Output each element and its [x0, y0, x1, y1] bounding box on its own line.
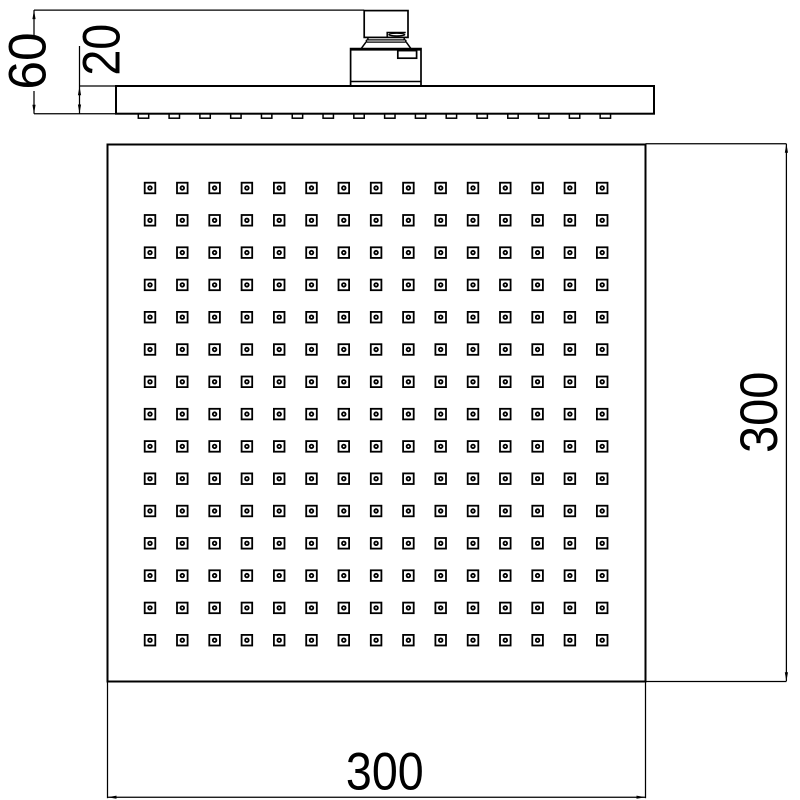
svg-text:300: 300 [729, 372, 788, 453]
svg-text:300: 300 [346, 742, 424, 800]
svg-text:20: 20 [72, 24, 131, 76]
svg-text:60: 60 [0, 32, 57, 89]
